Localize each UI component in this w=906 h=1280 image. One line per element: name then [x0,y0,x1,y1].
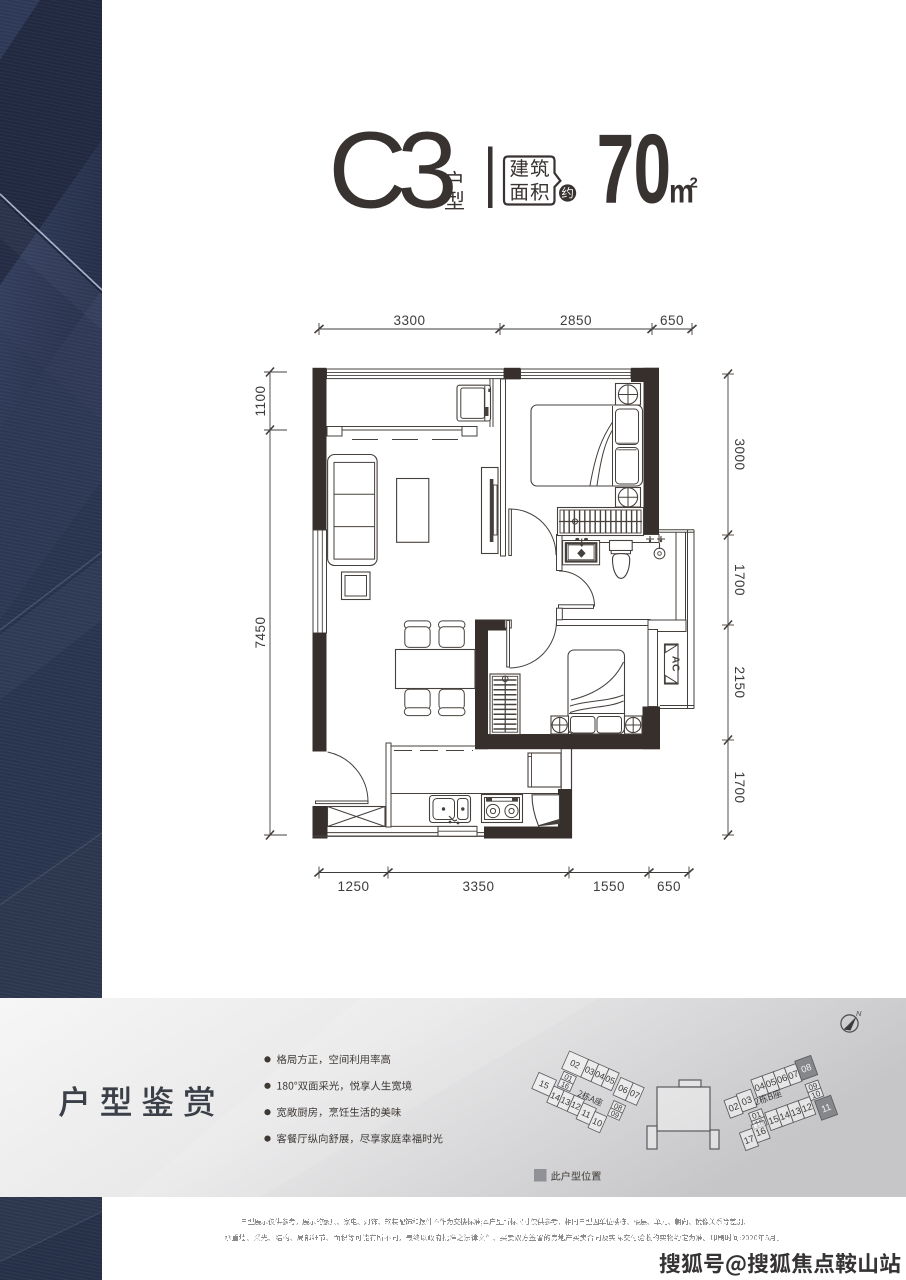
svg-text:650: 650 [660,313,684,328]
svg-text:650: 650 [657,879,681,894]
svg-text:1550: 1550 [593,879,625,894]
svg-text:1700: 1700 [732,771,747,803]
svg-text:1250: 1250 [337,879,369,894]
svg-text:N: N [856,1009,862,1018]
svg-text:3350: 3350 [462,879,494,894]
svg-text:1100: 1100 [253,385,268,416]
svg-text:7450: 7450 [253,616,268,648]
svg-text:2150: 2150 [732,666,747,698]
svg-text:1700: 1700 [732,564,747,596]
svg-text:70: 70 [597,114,671,223]
svg-text:2850: 2850 [560,313,592,328]
svg-text:C3: C3 [328,109,453,231]
svg-text:3300: 3300 [393,313,425,328]
svg-text:3000: 3000 [732,438,747,470]
svg-text:2: 2 [690,175,698,192]
svg-text:AC: AC [670,656,682,672]
